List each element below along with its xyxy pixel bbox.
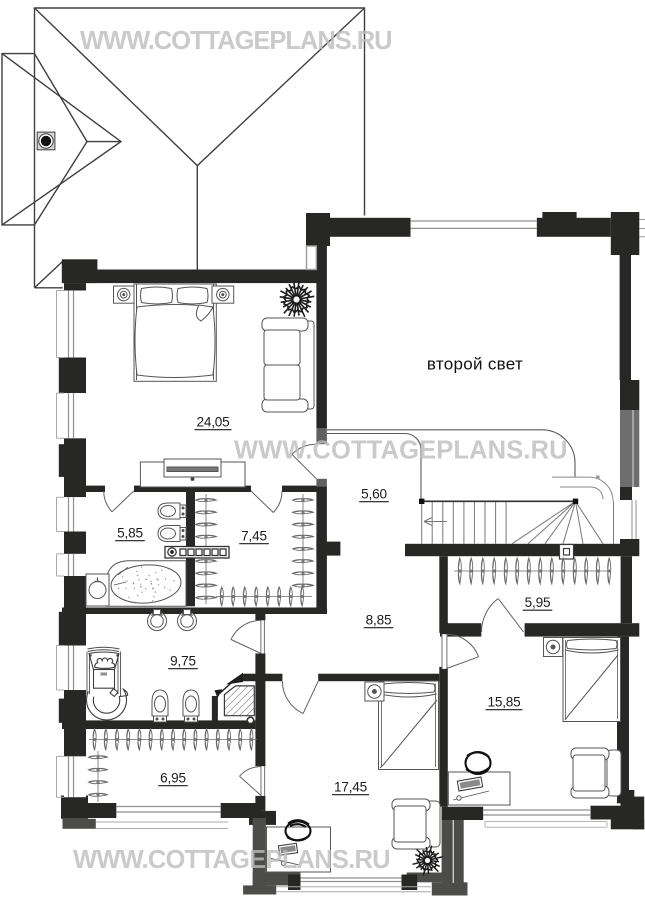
svg-text:8,85: 8,85 xyxy=(366,613,392,628)
svg-text:9,75: 9,75 xyxy=(170,654,196,669)
svg-text:WWW.COTTAGEPLANS.RU: WWW.COTTAGEPLANS.RU xyxy=(234,437,569,465)
svg-text:17,45: 17,45 xyxy=(334,780,367,795)
svg-text:7,45: 7,45 xyxy=(241,529,267,544)
svg-text:WWW.COTTAGEPLANS.RU: WWW.COTTAGEPLANS.RU xyxy=(80,27,393,55)
svg-text:24,05: 24,05 xyxy=(196,415,229,430)
svg-text:15,85: 15,85 xyxy=(487,695,520,710)
svg-text:5,95: 5,95 xyxy=(525,595,551,610)
svg-text:6,95: 6,95 xyxy=(160,771,186,786)
svg-text:5,60: 5,60 xyxy=(361,487,387,502)
svg-text:5,85: 5,85 xyxy=(117,526,143,541)
svg-text:второй свет: второй свет xyxy=(427,355,523,374)
svg-text:WWW.COTTAGEPLANS.RU: WWW.COTTAGEPLANS.RU xyxy=(73,846,391,874)
